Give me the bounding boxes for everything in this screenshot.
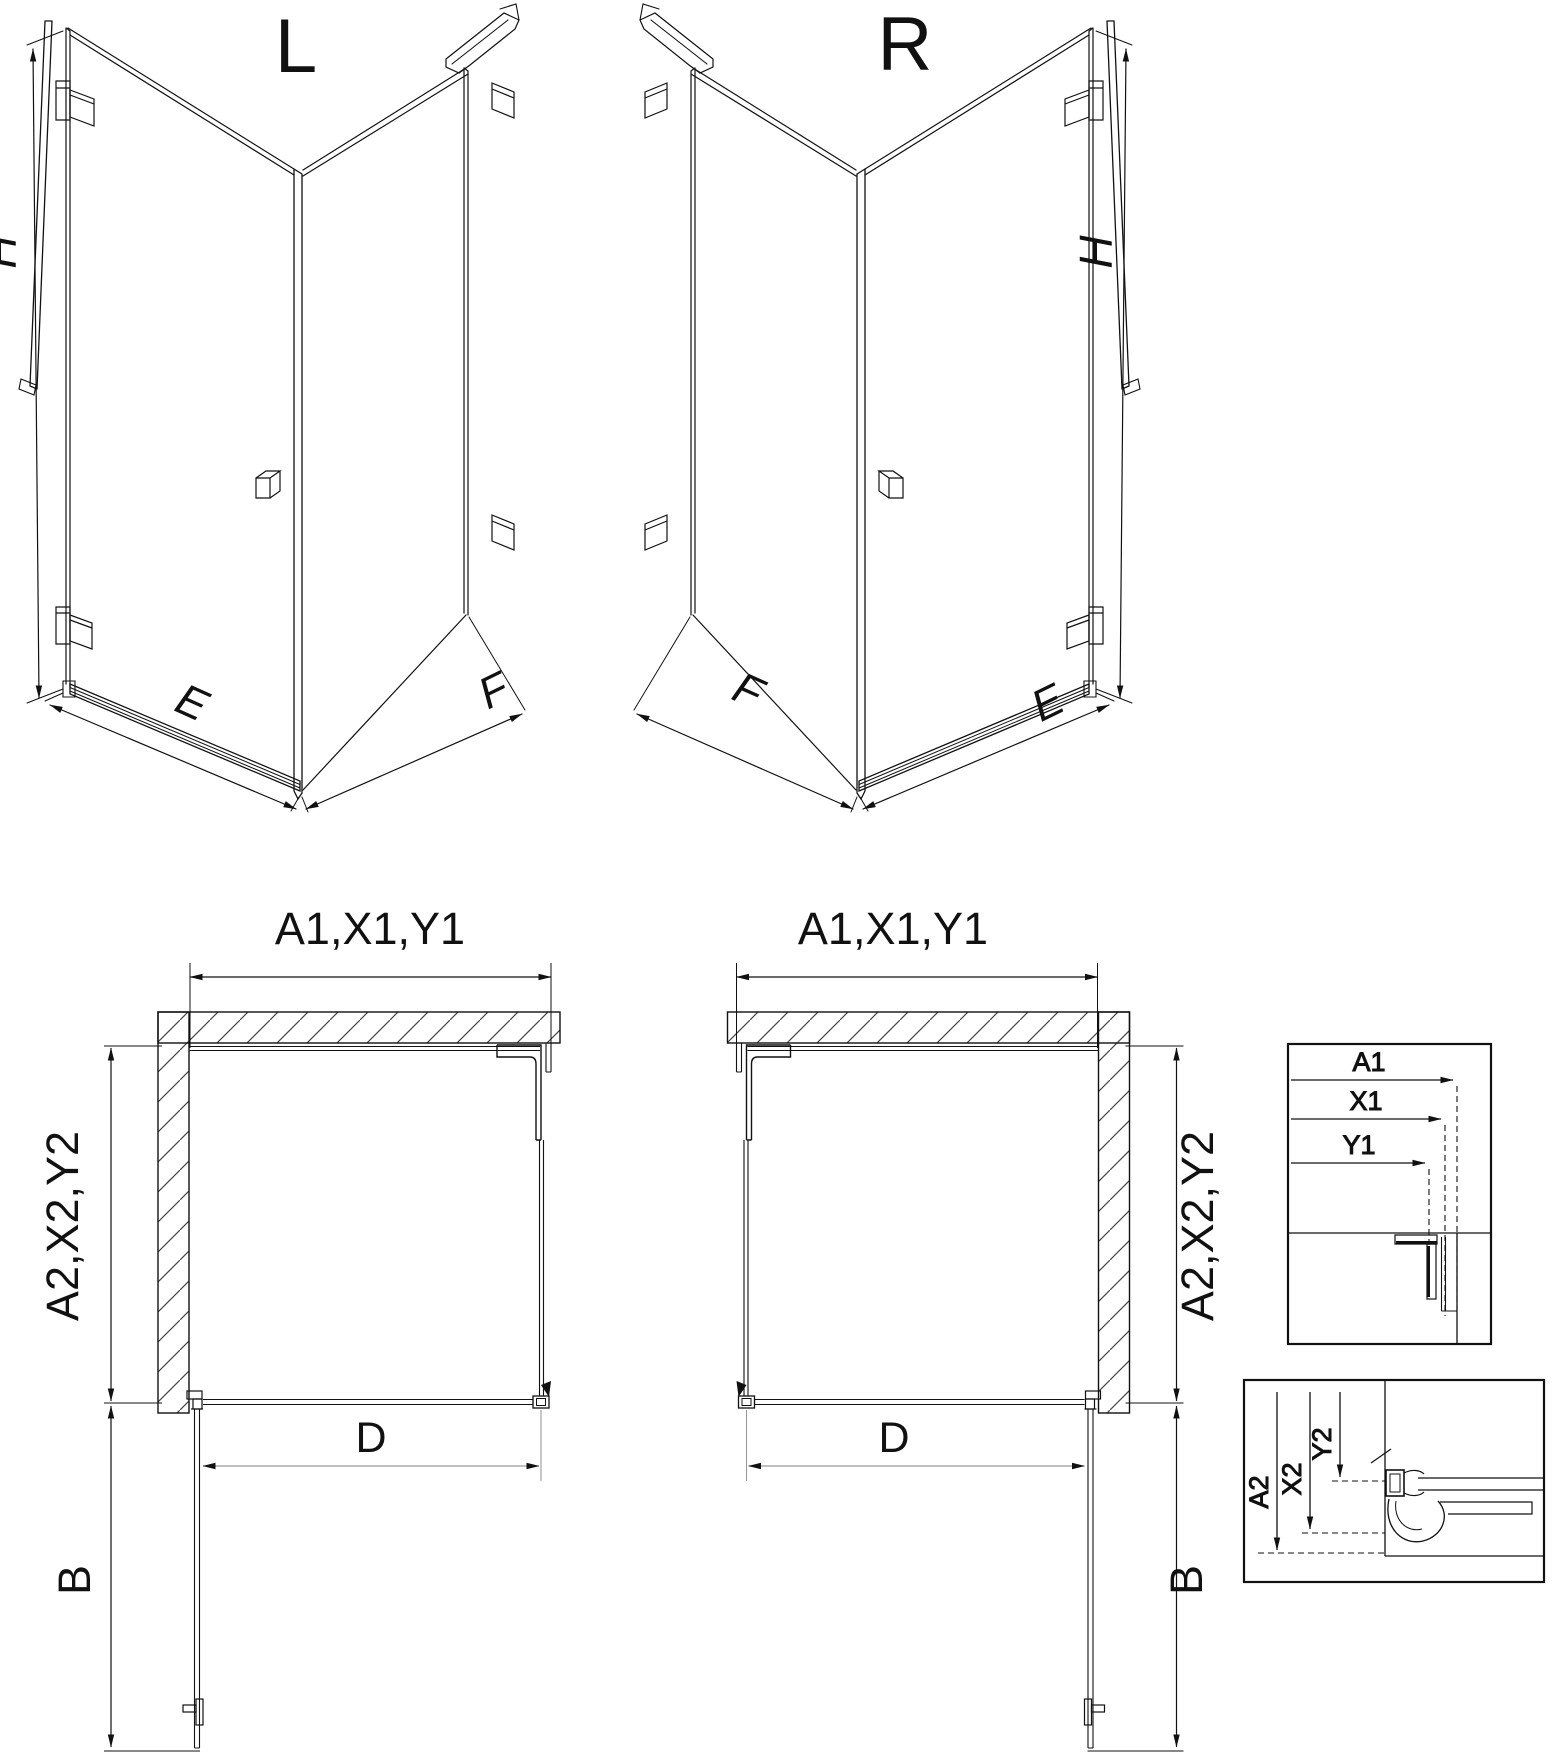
label-side-dim-right-plan: A2,X2,Y2 [1172,1131,1223,1321]
detail-label-y2: Y2 [1307,1427,1337,1460]
wall-hatch-side-right-plan [1099,1043,1130,1413]
label-height-left: H [0,235,26,269]
wall-hatch-top-right-plan [728,1012,1130,1043]
label-door-swing-left-plan: B [49,1565,100,1595]
detail-label-y1: Y1 [1342,1130,1375,1160]
label-fixed-side-left: F [471,662,519,719]
detail-label-a1: A1 [1352,1047,1385,1077]
iso-left-title: L [275,4,317,89]
wall-hatch-top-left-plan [158,1012,560,1043]
drawing-sheet: L H E F R H F E A1,X1,Y1 A2,X2,Y2 D B A1… [0,0,1561,1756]
tray-profile-section [1371,1449,1544,1542]
label-fixed-side-right: F [726,663,772,720]
wall-profile-section [1395,1233,1457,1344]
plan-view-left: A1,X1,Y1 A2,X2,Y2 D B [37,903,560,1751]
label-top-dim-left-plan: A1,X1,Y1 [275,903,465,954]
label-top-dim-right-plan: A1,X1,Y1 [798,903,988,954]
detail-box-width: A1 X1 Y1 [1288,1044,1491,1344]
label-door-width-left-plan: D [355,1414,386,1462]
reference-dashed-lines [1429,1086,1457,1316]
wall-hatch-side-left-plan [158,1043,189,1413]
iso-linework-left [19,4,525,812]
technical-drawing: L H E F R H F E A1,X1,Y1 A2,X2,Y2 D B A1… [0,0,1561,1756]
label-door-side-left: E [169,674,216,731]
label-side-dim-left-plan: A2,X2,Y2 [37,1131,88,1321]
detail-label-x1: X1 [1349,1086,1382,1116]
iso-linework-right [634,4,1140,812]
detail-label-x2: X2 [1277,1462,1307,1495]
detail-box-depth: A2 X2 Y2 [1244,1380,1544,1582]
label-door-side-right: E [1024,674,1072,731]
iso-right-title: R [878,2,933,87]
detail-label-a2: A2 [1244,1475,1274,1508]
iso-view-right: R H F E [634,2,1140,812]
iso-view-left: L H E F [0,4,525,812]
label-door-swing-right-plan: B [1161,1565,1212,1595]
label-door-width-right-plan: D [878,1414,909,1462]
plan-view-right: A1,X1,Y1 A2,X2,Y2 D B [728,903,1224,1751]
label-height-right: H [1070,235,1122,269]
